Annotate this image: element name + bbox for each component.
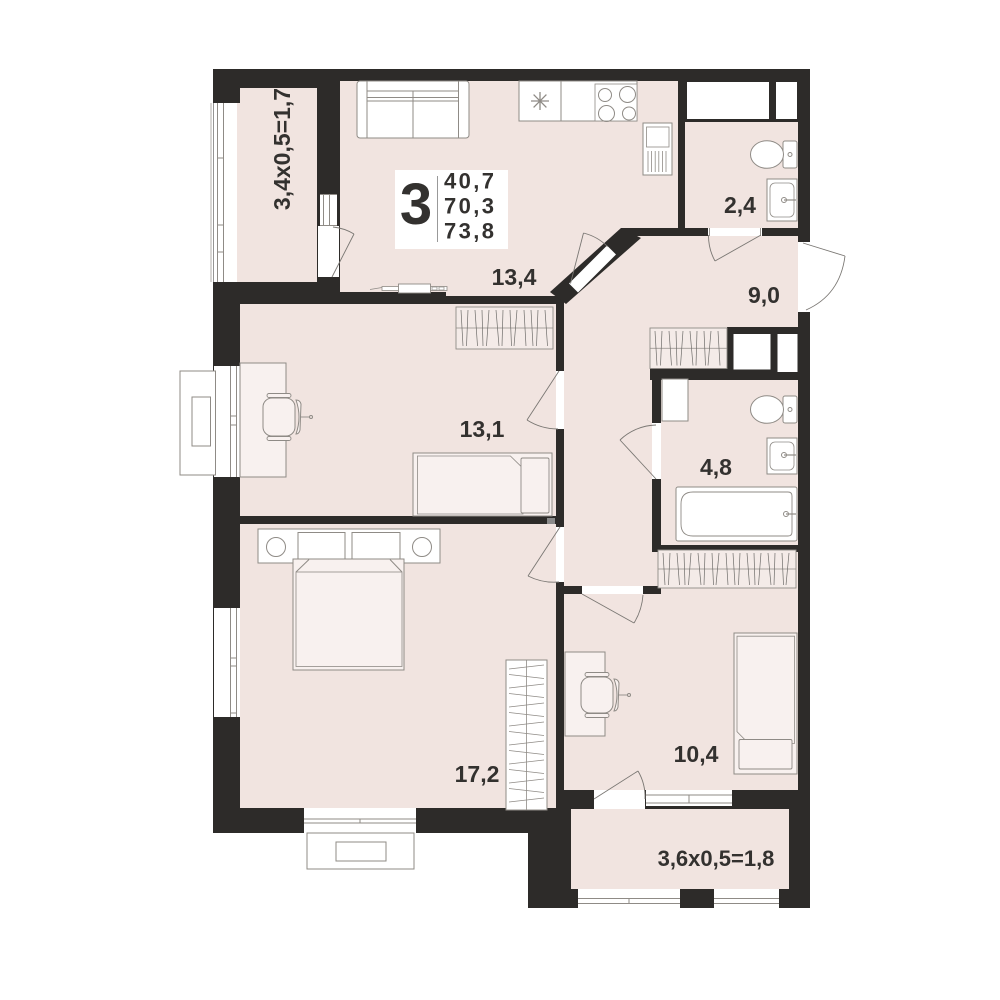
svg-text:3: 3 [400,172,432,237]
svg-text:13,1: 13,1 [460,416,505,442]
svg-text:40,7: 40,7 [444,168,496,193]
svg-text:3,6х0,5=1,8: 3,6х0,5=1,8 [658,846,775,871]
svg-text:9,0: 9,0 [748,282,780,308]
svg-text:13,4: 13,4 [492,264,537,290]
svg-text:3,4х0,5=1,7: 3,4х0,5=1,7 [269,88,295,210]
svg-text:17,2: 17,2 [455,761,500,787]
svg-text:4,8: 4,8 [700,454,732,480]
svg-text:73,8: 73,8 [444,218,496,243]
svg-text:2,4: 2,4 [724,192,756,218]
svg-text:10,4: 10,4 [674,741,719,767]
svg-text:70,3: 70,3 [444,193,496,218]
